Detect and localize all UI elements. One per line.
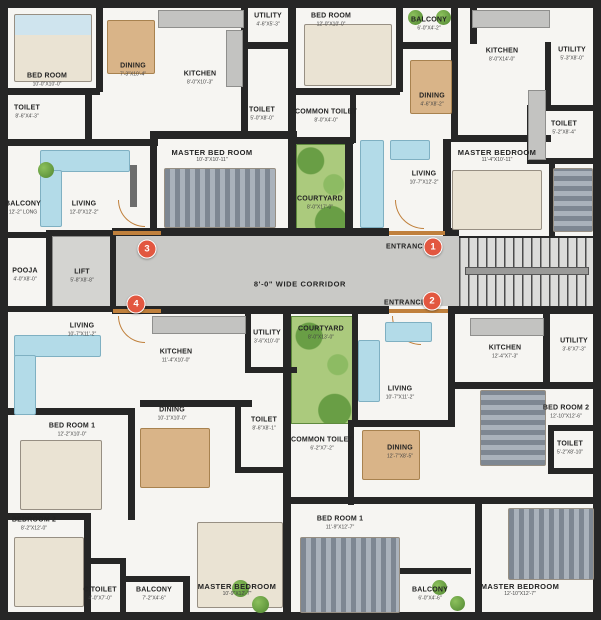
room-label-dining-tl: DINING7'-3"X10'-4" [120,63,146,78]
bed [508,508,594,580]
wall [396,8,403,92]
tv-unit [130,165,137,207]
door-arc [395,200,424,229]
plant [38,162,54,178]
entrance-marker-4: 4 [127,295,146,314]
wall [120,558,126,613]
room-label-dining-bm: DINING12'-7"X8'-5" [387,445,413,460]
sofa [40,170,62,227]
room-label-bedroom-tm: BED ROOM12'-0"X10'-0" [311,13,351,28]
lift-wall [110,230,116,312]
wall [183,576,190,618]
lift-wall [46,230,116,236]
kitchen-counter [152,316,246,334]
room-label-bedroom-tl: BED ROOM10'-0"X10'-0" [27,73,67,88]
sofa [14,355,36,415]
dining-table [140,428,210,488]
room-label-toilet2-tl: TOILET5'-0"X8'-0" [249,107,275,122]
room-label-living-tl: LIVING12'-0"X12'-2" [70,201,99,216]
plant [252,596,269,613]
wall [283,310,291,612]
wall [283,497,601,504]
room-label-master-br: MASTER BEDROOM12'-10"X12'-7" [481,582,560,598]
room-label-utility-br: UTILITY3'-6"X7'-3" [560,338,588,353]
room-label-pooja: POOJA4'-0"X8'-0" [12,268,38,283]
lift-wall [46,230,52,312]
sofa [14,335,101,357]
room-label-toilet-tr: TOILET5'-2"X8'-4" [551,121,577,136]
kitchen-counter [470,318,544,336]
room-label-living-tm: LIVING10'-7"X12'-2" [410,171,439,186]
bed [300,537,400,613]
wall [443,139,451,236]
bed [452,170,542,230]
bed [304,24,392,86]
room-label-utility-tl: UTILITY4'-6"X5'-3" [254,13,282,28]
plant [450,596,465,611]
room-label-living-bm: LIVING10'-7"X11'-2" [386,386,414,401]
room-label-balcony-bl: BALCONY7'-2"X4'-6" [136,587,172,602]
room-label-common-toilet-bm: COMMON TOILET6'-2"X7'-2" [291,437,353,452]
sofa [358,340,380,402]
room-label-dining-tm: DINING4'-6"X8'-2" [419,93,445,108]
room-label-bedroom2-bl: BEDROOM 28'-2"X12'-0" [12,517,56,532]
room-label-kitchen-tl: KITCHEN8'-0"X10'-3" [184,71,217,86]
entrance-sill [113,231,161,235]
wall [448,310,455,427]
wall [150,139,157,234]
lift-wall [46,306,116,312]
room-label-kitchen-bl: KITCHEN11'-4"X10'-0" [160,349,193,364]
entrance-marker-3: 3 [138,240,157,259]
sofa [385,322,432,342]
entrance-label-2: ENTRANCE [384,300,426,307]
room-label-common-toilet-tm: COMMON TOILET8'-0"X4'-0" [295,109,357,124]
wall [593,0,601,620]
wall [451,8,458,141]
wall [548,427,554,472]
wall [120,576,187,582]
courtyard-top [296,144,347,234]
wall [548,425,601,431]
room-label-utility-tr: UTILITY5'-3"X8'-0" [558,47,586,62]
kitchen-counter [226,30,243,87]
door-arc [118,316,145,343]
sofa [360,140,384,228]
wall [8,88,100,95]
wall [348,420,454,427]
wall [85,95,92,143]
entrance-sill [389,309,448,313]
room-label-balcony-br: BALCONY6'-0"X4'-6" [412,587,448,602]
room-label-dining-bl: DINING10'-1"X10'-0" [158,407,187,422]
room-label-lift: LIFT5'-8"X8'-8" [70,269,93,284]
room-label-balcony-tm: BALCONY6'-0"X4'-2" [411,17,447,32]
wall [0,232,48,238]
kitchen-counter [158,10,244,28]
wall [235,400,241,470]
wall [403,42,458,49]
wall [241,88,248,133]
room-label-toilet-tl: TOILET8'-6"X4'-3" [14,105,40,120]
bed [480,390,546,466]
bed [14,537,84,607]
wall [96,8,103,92]
wall [0,612,601,620]
sofa [390,140,430,160]
corridor-label: 8'-0" WIDE CORRIDOR [254,280,346,289]
wall [150,131,297,139]
room-label-master-tr: MASTER BEDROOM11'-4"X10'-11" [458,148,537,164]
wall [296,137,354,144]
entrance-sill [389,231,445,235]
room-label-master-tl: MASTER BED ROOM10'-3"X10'-11" [172,148,253,164]
entrance-label-1: ENTRANCE [386,244,428,251]
room-label-kitchen-tr: KITCHEN8'-0"X14'-0" [486,48,519,63]
wall [0,306,48,312]
wall [455,382,601,389]
room-label-kitchen-br: KITCHEN12'-4"X7'-3" [489,345,522,360]
room-label-bedroom2-br: BED ROOM 212'-10"X12'-6" [543,405,589,420]
room-label-toilet-br: TOILET5'-2"X8'-10" [557,441,583,456]
room-label-master-bm: MASTER BEDROOM10'-9"X12'-7" [198,582,277,598]
wall [296,88,400,95]
entrance-marker-1: 1 [424,238,443,257]
wall [241,42,295,49]
room-label-utility-bl: UTILITY3'-6"X10'-0" [253,330,281,345]
bed [553,168,593,232]
bed [164,168,276,228]
room-label-living-bl: LIVING10'-7"X11'-2" [68,323,96,338]
room-label-bedroom1-bm: BED ROOM 111'-9"X12'-7" [317,516,363,531]
room-label-bedroom1-bl: BED ROOM 112'-2"X10'-0" [49,423,95,438]
bed [20,440,102,510]
entrance-marker-2: 2 [423,292,442,311]
room-label-courtyard-bottom: COURTYARD8'-0"X13'-0" [298,326,344,341]
room-label-toilet-bl: TOILET8'-6"X8'-1" [251,417,277,432]
wall [345,144,353,234]
room-label-balcony-tl: BALCONY12'-2" LONG [5,201,41,216]
wall [548,468,601,474]
wall [543,314,550,384]
wall [448,306,593,314]
floor-plan: BED ROOM10'-0"X10'-0" TOILET8'-6"X4'-3" … [0,0,601,620]
wall [128,408,135,520]
staircase-rail [465,267,589,275]
wall [0,0,601,8]
room-label-courtyard-top: COURTYARD8'-0"X17'-0" [297,196,343,211]
wall [0,139,158,146]
kitchen-counter [472,10,550,28]
room-label-ctoilet-bl: C.TOILET4'-0"X7'-0" [83,587,116,602]
